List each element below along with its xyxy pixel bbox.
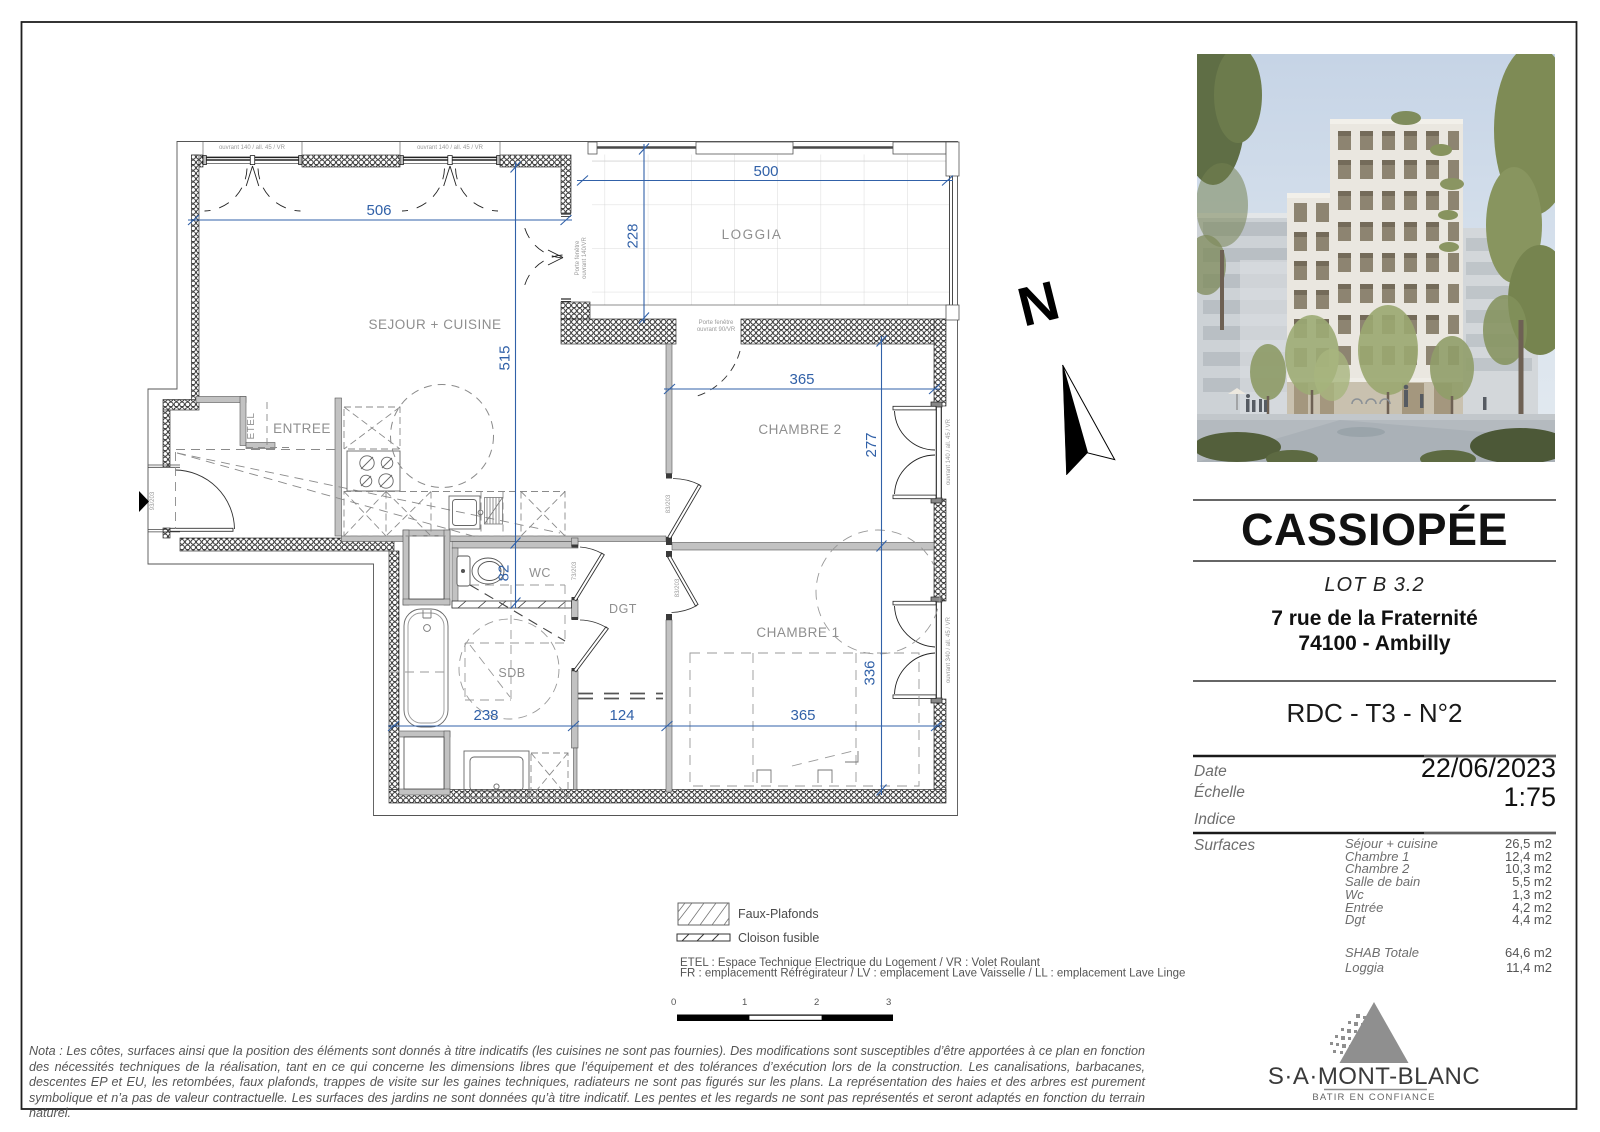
svg-text:Porte fenêtre: Porte fenêtre [699,320,734,326]
svg-text:83/203: 83/203 [675,578,681,597]
svg-text:336: 336 [862,660,879,685]
svg-text:ouvrant 90/VR: ouvrant 90/VR [697,327,736,333]
svg-text:ETEL: ETEL [246,412,257,439]
svg-text:506: 506 [366,202,391,219]
svg-text:3: 3 [886,997,891,1008]
svg-text:ENTREE: ENTREE [273,421,331,436]
svg-text:365: 365 [789,371,814,388]
svg-text:73/203: 73/203 [572,561,578,580]
svg-text:Porte fenêtre: Porte fenêtre [575,240,581,275]
svg-text:ouvrant 140 / all. 45 / VR: ouvrant 140 / all. 45 / VR [417,145,484,151]
svg-text:ouvrant 140 / all. 45 / VR: ouvrant 140 / all. 45 / VR [219,145,286,151]
svg-text:228: 228 [625,223,642,248]
svg-text:SDB: SDB [498,666,525,680]
svg-text:DGT: DGT [609,602,637,616]
svg-text:CHAMBRE 1: CHAMBRE 1 [756,625,839,640]
svg-text:500: 500 [753,163,778,180]
svg-text:ouvrant 140 / all. 45 / VR: ouvrant 140 / all. 45 / VR [946,418,952,485]
svg-text:ouvrant 340 / all. 45 / VR: ouvrant 340 / all. 45 / VR [946,616,952,683]
svg-text:WC: WC [529,566,551,580]
svg-text:ouvrant 140/VR: ouvrant 140/VR [582,236,588,278]
svg-text:FR : emplacementt Réfrégirateu: FR : emplacementt Réfrégirateur / LV : e… [680,968,1185,980]
svg-text:SEJOUR + CUISINE: SEJOUR + CUISINE [369,317,502,332]
svg-text:LOGGIA: LOGGIA [722,227,783,242]
svg-text:0: 0 [671,997,676,1008]
svg-text:238: 238 [473,707,498,724]
svg-text:Cloison fusible: Cloison fusible [738,931,819,945]
svg-text:515: 515 [497,345,514,370]
svg-text:Faux-Plafonds: Faux-Plafonds [738,907,819,921]
svg-text:N: N [1012,269,1066,339]
svg-text:365: 365 [790,707,815,724]
svg-text:S·A·MONT-BLANC: S·A·MONT-BLANC [1268,1063,1480,1090]
svg-text:83/203: 83/203 [666,494,672,513]
svg-text:277: 277 [863,432,880,457]
svg-text:82: 82 [496,565,513,582]
svg-text:BATIR EN CONFIANCE: BATIR EN CONFIANCE [1312,1092,1435,1103]
svg-text:CHAMBRE 2: CHAMBRE 2 [758,422,841,437]
svg-text:1: 1 [742,997,747,1008]
svg-text:2: 2 [814,997,819,1008]
svg-text:124: 124 [609,707,634,724]
svg-text:93/203: 93/203 [150,491,156,510]
